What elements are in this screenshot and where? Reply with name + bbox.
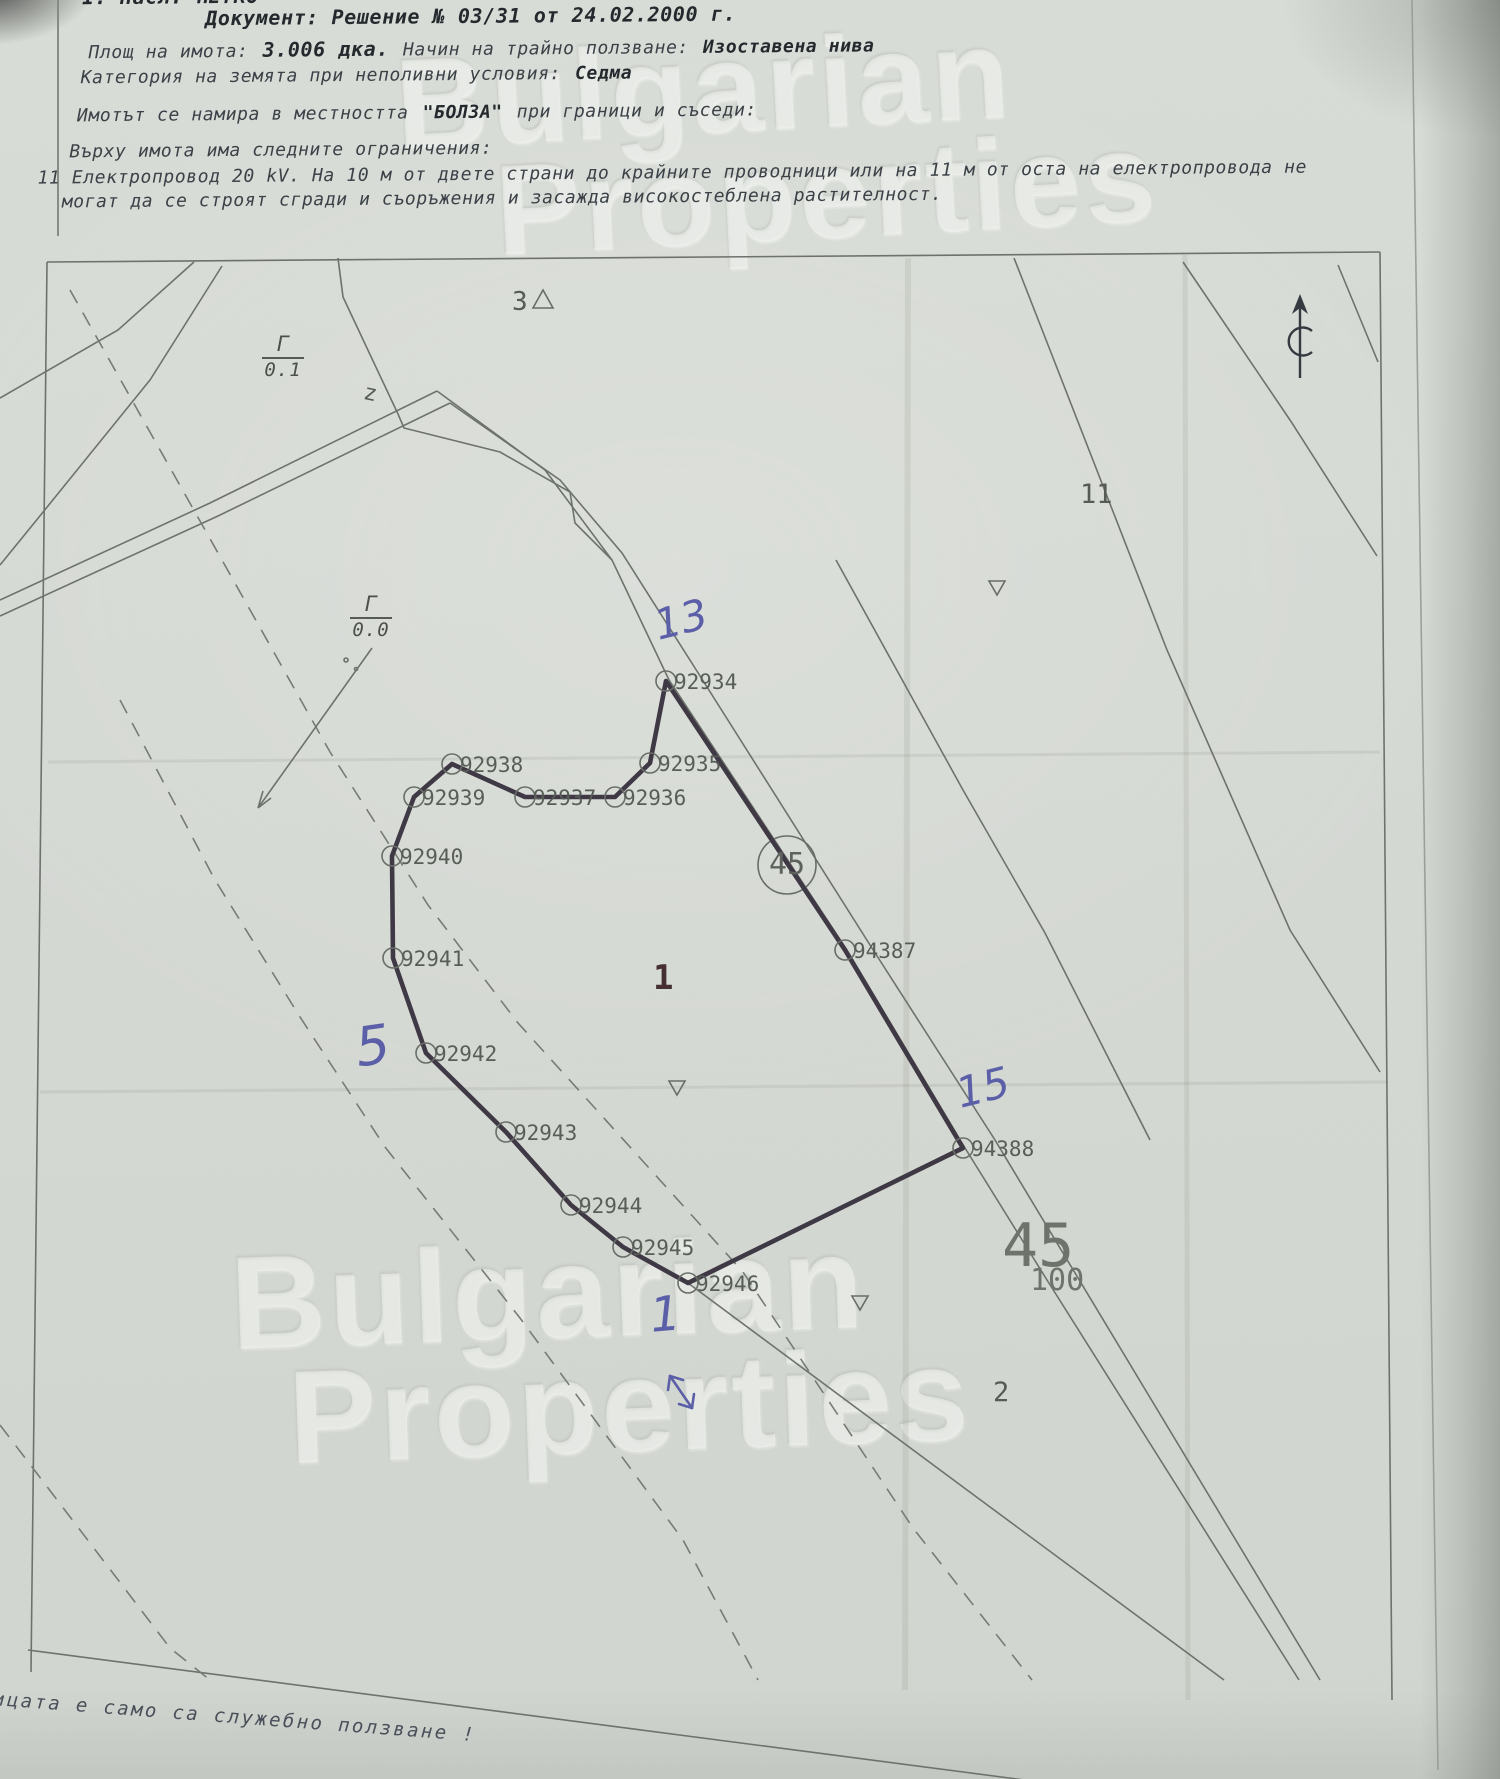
parcel-line [1183,262,1377,556]
parcel-line [1338,265,1378,362]
north-arrow-icon [1289,294,1312,378]
map-border-right [1380,252,1392,1700]
boundary-point-number: 92937 [533,786,596,810]
boundary-point-number: 92942 [434,1042,497,1066]
pen-note-5: 5 [352,1017,394,1075]
boundary-point-number: 94388 [971,1137,1034,1161]
map-dot [344,658,348,662]
fraction-denominator: 0.0 [348,621,394,640]
boundary-point-number: 92941 [401,947,464,971]
boundary-point-number: 92935 [658,752,721,776]
parcel-line [338,258,612,560]
map-border-top [47,252,1380,262]
triangle-marker-down-icon [989,581,1005,595]
boundary-point-number: 92939 [422,786,485,810]
parcel-line [0,262,194,398]
pen-note-13: 13 [650,593,712,647]
map-dot [355,668,358,671]
parcel-number: 1 [653,961,673,995]
fraction-denominator: 0.1 [260,361,306,380]
leader-arrow [258,648,372,808]
boundary-point-number: 92943 [514,1121,577,1145]
scanned-cadastral-document: { "document": { "line1": "1. Насл. ПЕТКО… [0,0,1500,1779]
boundary-point-number: 92940 [400,845,463,869]
parcel-line [836,560,1150,1140]
boundary-point-number: 92944 [579,1194,642,1218]
landuse-fraction-0-1: Г0.1 [260,334,306,380]
boundary-point-number: 92934 [674,670,737,694]
triangle-marker-up-icon [533,290,553,308]
landuse-fraction-0-0: Г0.0 [348,594,394,640]
parcel-line [0,266,222,565]
fraction-numerator: Г [260,334,306,355]
pen-note-15: 15 [952,1061,1014,1115]
pen-double-arrow [668,1376,694,1408]
map-border-left [31,262,47,1672]
boundary-point-number: 92938 [460,753,523,777]
scan-fold-line [905,258,908,1690]
road-line [0,403,450,616]
fraction-numerator: Г [348,594,394,615]
neighbor-parcel-3: 3 [512,289,528,315]
road-parcel-number: 45 [769,850,805,880]
boundary-point-number: 92936 [623,786,686,810]
powerline-corridor-dashed [70,290,1032,1680]
boundary-point-number: 92945 [631,1236,694,1260]
neighbor-parcel-11: 11 [1080,481,1113,508]
parcel-line [688,1283,1224,1680]
boundary-point-number: 92946 [696,1272,759,1296]
pen-note-1: 1 [648,1289,683,1339]
triangle-marker-down-icon [852,1296,868,1310]
neighbor-parcel-2: 2 [993,1379,1009,1406]
scan-fold-line [1185,255,1188,1700]
map-sheet-sub-number: 100 [1030,1266,1084,1296]
boundary-point-number: 94387 [853,939,916,963]
road-line [0,391,437,600]
page-edge-line [1412,0,1438,1770]
cadastral-map: 9293492935929369293792938929399294092941… [0,0,1500,1779]
road-line [437,391,1299,1680]
parcel-line [1014,258,1380,1072]
